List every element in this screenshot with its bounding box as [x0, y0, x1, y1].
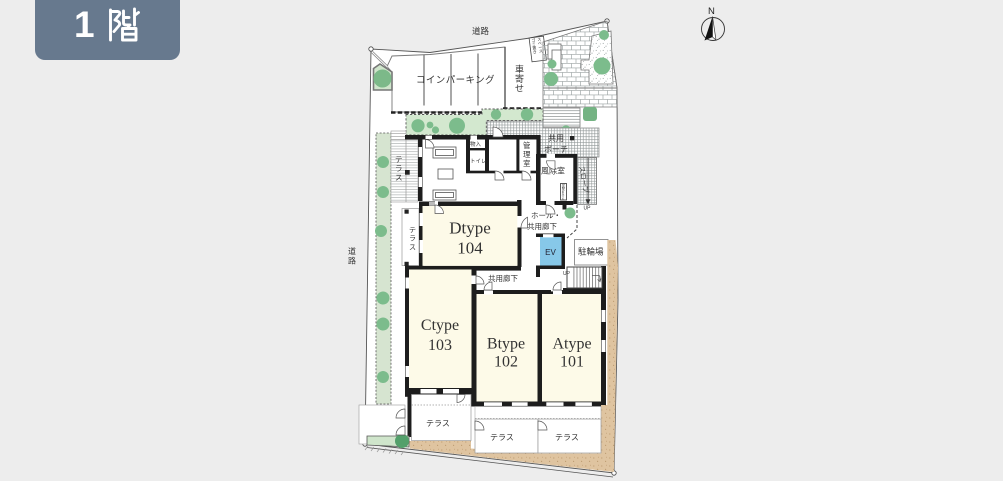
svg-text:道路: 道路: [472, 26, 490, 36]
svg-text:UP: UP: [584, 206, 592, 212]
svg-text:車寄せ: 車寄せ: [515, 64, 524, 94]
svg-text:102: 102: [494, 354, 518, 371]
svg-text:共用廊下: 共用廊下: [488, 273, 518, 283]
svg-text:テラス: テラス: [395, 155, 403, 182]
svg-text:共用廊下: 共用廊下: [527, 221, 557, 231]
svg-text:N: N: [708, 6, 715, 17]
svg-text:ポーチ: ポーチ: [544, 145, 568, 154]
svg-text:104: 104: [457, 239, 483, 258]
svg-text:道路: 道路: [348, 246, 356, 266]
svg-text:UP: UP: [563, 271, 571, 277]
svg-text:コインパーキング: コインパーキング: [416, 74, 495, 86]
svg-text:トイレ: トイレ: [470, 159, 487, 165]
svg-text:共用: 共用: [548, 134, 564, 143]
svg-text:物入: 物入: [470, 140, 482, 148]
svg-text:EV: EV: [545, 248, 556, 257]
svg-text:103: 103: [428, 337, 452, 354]
svg-text:Dtype: Dtype: [449, 219, 491, 238]
svg-text:テラス: テラス: [426, 419, 450, 428]
svg-text:Ctype: Ctype: [421, 317, 459, 334]
svg-text:1: 1: [74, 4, 95, 45]
svg-text:テラス: テラス: [555, 433, 579, 442]
svg-text:駐輪場: 駐輪場: [578, 247, 604, 257]
svg-text:101: 101: [560, 354, 584, 371]
svg-text:Atype: Atype: [552, 336, 591, 353]
svg-text:Btype: Btype: [487, 336, 525, 353]
svg-text:テラス: テラス: [409, 226, 416, 251]
svg-text:管理室: 管理室: [523, 140, 531, 168]
svg-text:テラス: テラス: [490, 433, 514, 442]
